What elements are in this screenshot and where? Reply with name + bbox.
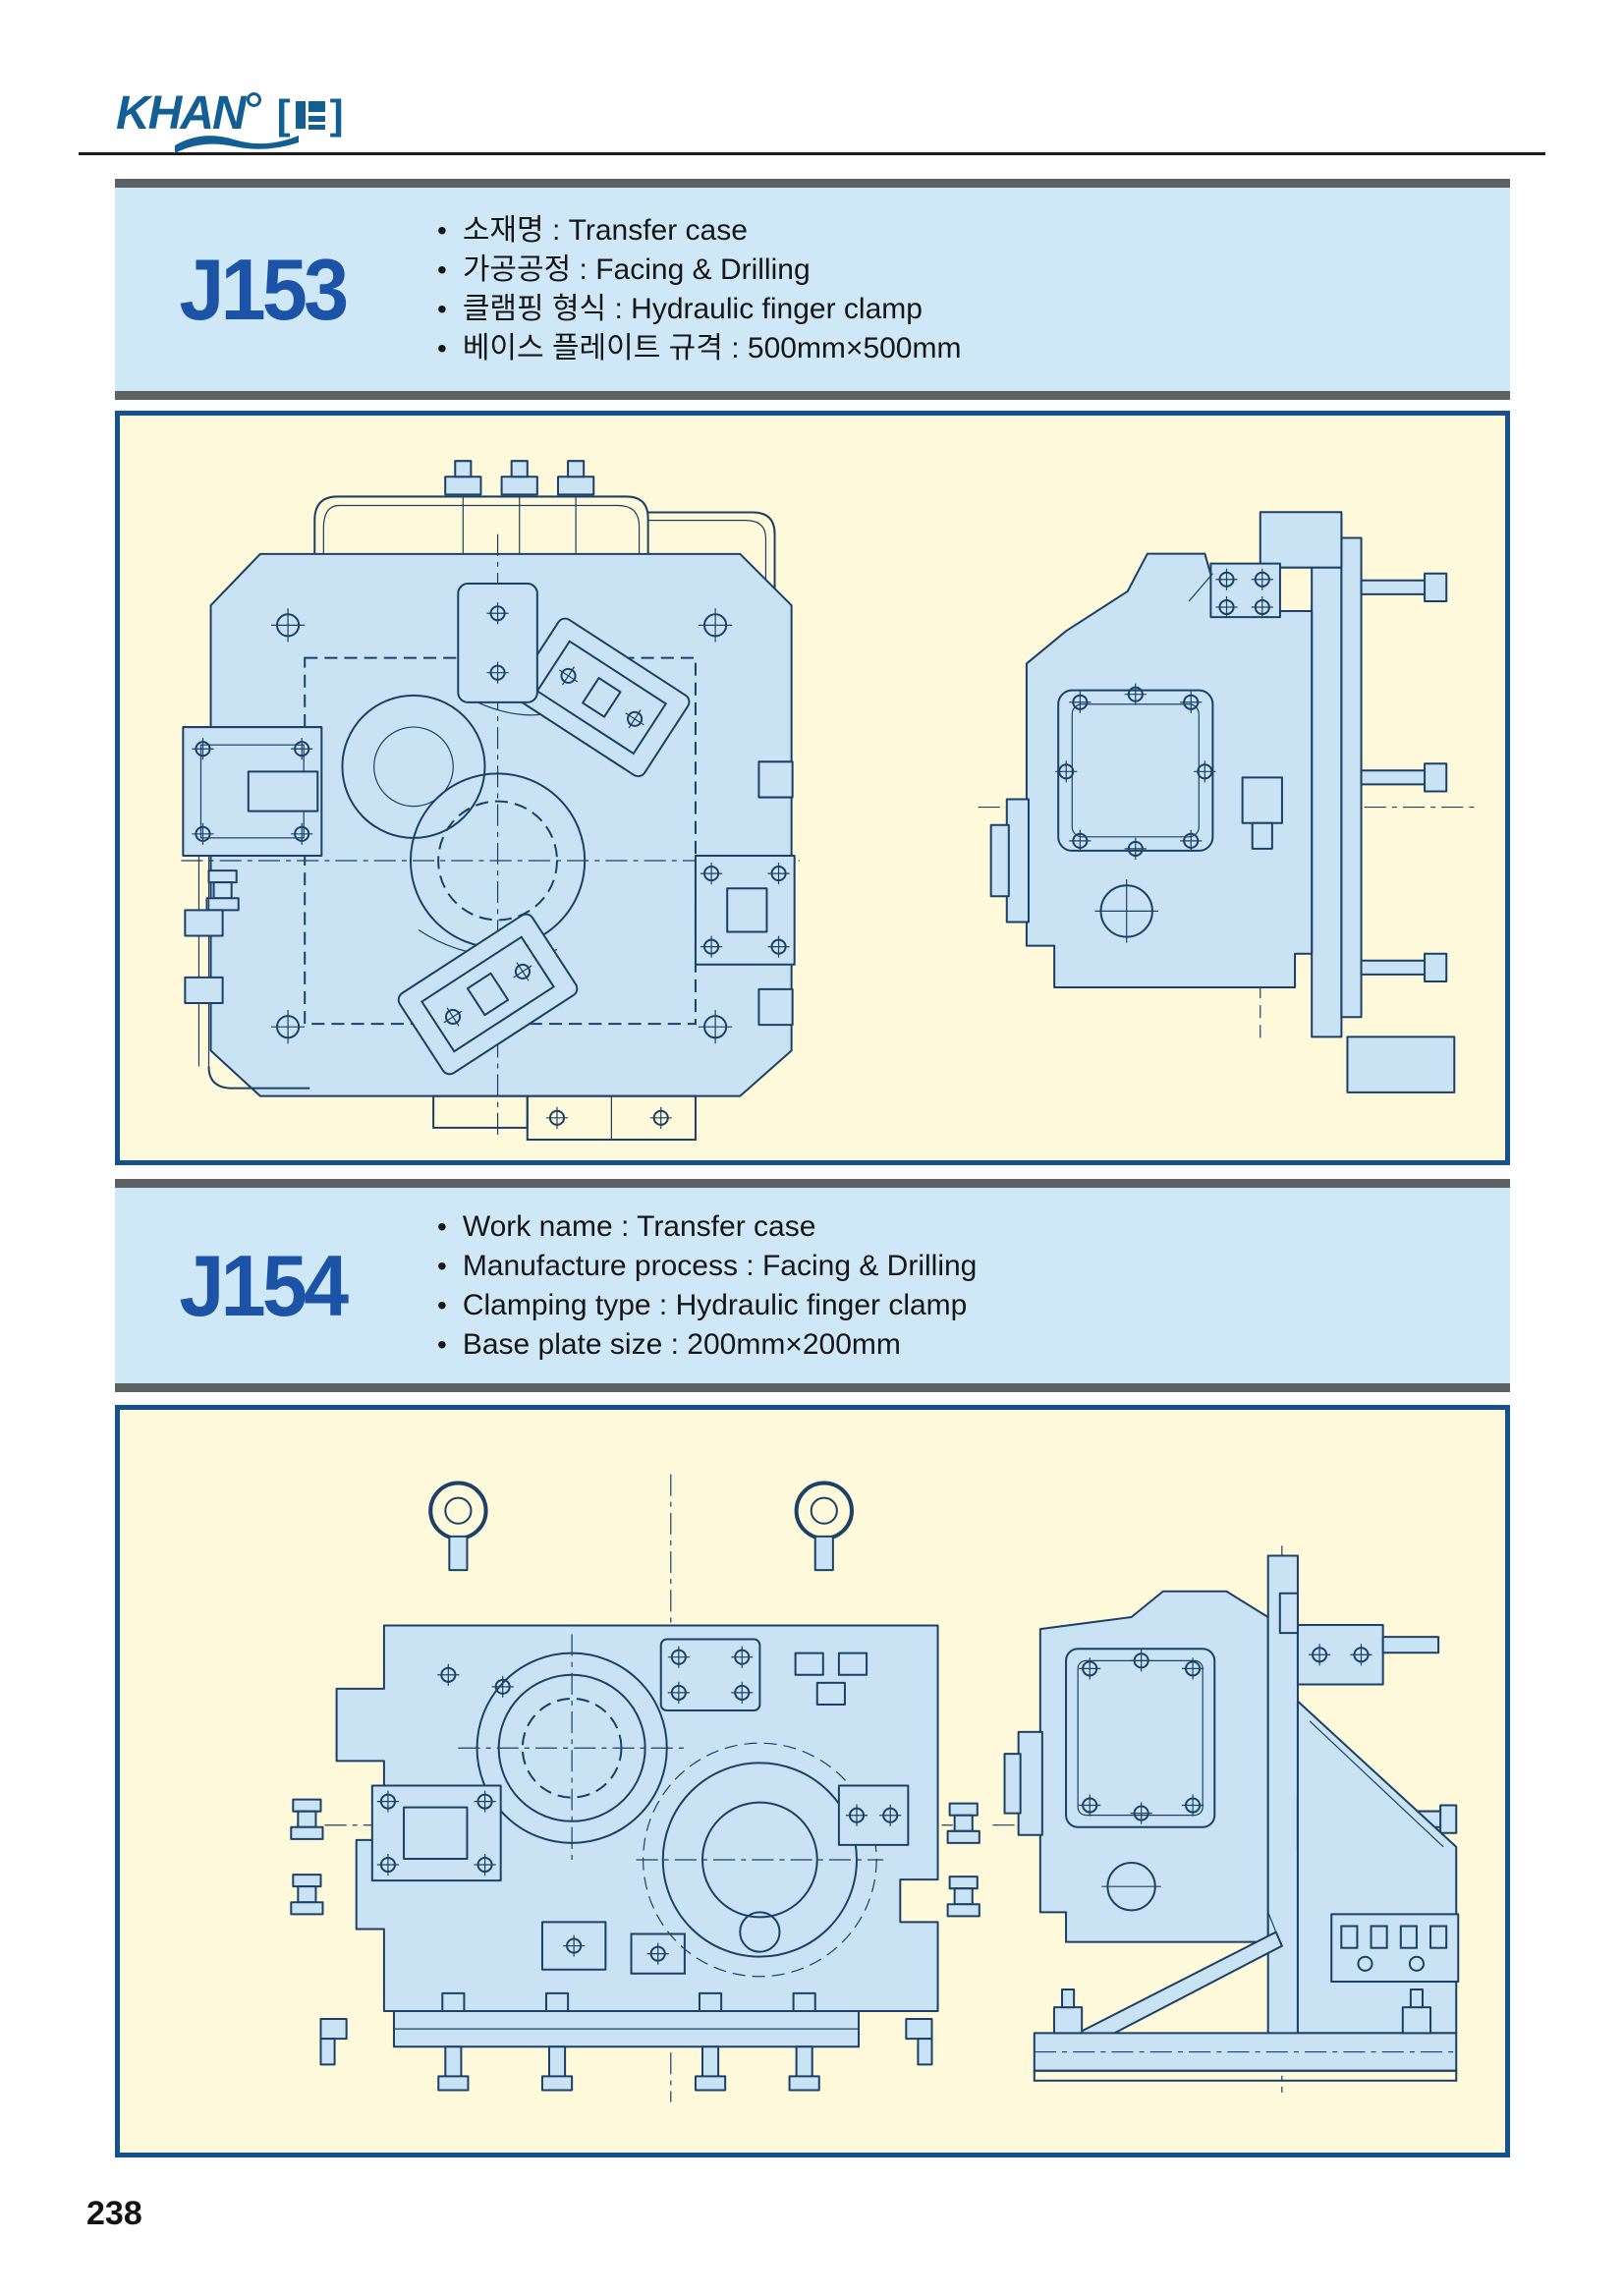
spec-top-bar bbox=[115, 179, 1510, 188]
spec-block-j153: J153 소재명 : Transfer case 가공공정 : Facing &… bbox=[115, 179, 1510, 400]
bottom-tabs bbox=[433, 1096, 696, 1140]
fixture-code-j154: J154 bbox=[180, 1236, 346, 1336]
angle-gusset bbox=[1298, 1702, 1456, 2034]
drawing-panel-j154 bbox=[115, 1405, 1510, 2157]
j153-plan-view-drawing bbox=[161, 435, 814, 1143]
khan-logo: KHAN [ ] bbox=[116, 90, 344, 151]
spec-bullet: 가공공정 : Facing & Drilling bbox=[437, 251, 1510, 290]
spec-bullet-list: 소재명 : Transfer case 가공공정 : Facing & Dril… bbox=[410, 188, 1510, 391]
khan-logo-text: KHAN bbox=[116, 90, 245, 138]
j154-front-view-drawing bbox=[246, 1459, 1007, 2107]
spec-bottom-bar bbox=[115, 391, 1510, 400]
catalog-page: KHAN [ ] J153 소재명 : Transfer case 가공공정 bbox=[0, 0, 1624, 2296]
spec-bullet: 클램핑 형식 : Hydraulic finger clamp bbox=[437, 290, 1510, 329]
spec-bottom-bar bbox=[115, 1383, 1510, 1392]
cover-plate bbox=[1066, 1649, 1214, 1826]
input-shaft bbox=[1005, 1732, 1042, 1835]
page-number: 238 bbox=[86, 2195, 142, 2233]
top-locator-plate bbox=[458, 584, 537, 702]
spec-top-bar bbox=[115, 1179, 1510, 1188]
logo-dot-icon bbox=[247, 92, 261, 107]
code-column: J153 bbox=[115, 188, 410, 391]
j153-side-view-drawing bbox=[963, 480, 1488, 1114]
fixture-code-j153: J153 bbox=[180, 240, 346, 340]
drawing-panel-j153 bbox=[115, 411, 1510, 1165]
spec-bullet: 소재명 : Transfer case bbox=[437, 211, 1510, 251]
j154-side-view-drawing bbox=[982, 1498, 1503, 2107]
spec-bullet-list: Work name : Transfer case Manufacture pr… bbox=[410, 1188, 1510, 1383]
spec-bullet: Base plate size : 200mm×200mm bbox=[437, 1325, 1510, 1365]
code-column: J154 bbox=[115, 1188, 410, 1383]
mounting-bolts bbox=[1362, 574, 1447, 981]
spec-block-j154: J154 Work name : Transfer case Manufactu… bbox=[115, 1179, 1510, 1392]
cover-plate bbox=[1055, 684, 1215, 860]
lifting-eyebolts bbox=[430, 1484, 852, 1571]
input-shaft bbox=[991, 800, 1029, 923]
spec-bullet: Work name : Transfer case bbox=[437, 1207, 1510, 1247]
spec-bullet: Manufacture process : Facing & Drilling bbox=[437, 1247, 1510, 1286]
spec-bullet: Clamping type : Hydraulic finger clamp bbox=[437, 1286, 1510, 1325]
upper-clamp bbox=[1280, 1594, 1438, 1685]
logo-seal-icon bbox=[294, 97, 327, 133]
hydraulic-manifold bbox=[1331, 1914, 1458, 1982]
logo-bracket-right: ] bbox=[330, 94, 344, 136]
spec-bullet: 베이스 플레이트 규격 : 500mm×500mm bbox=[437, 329, 1510, 368]
